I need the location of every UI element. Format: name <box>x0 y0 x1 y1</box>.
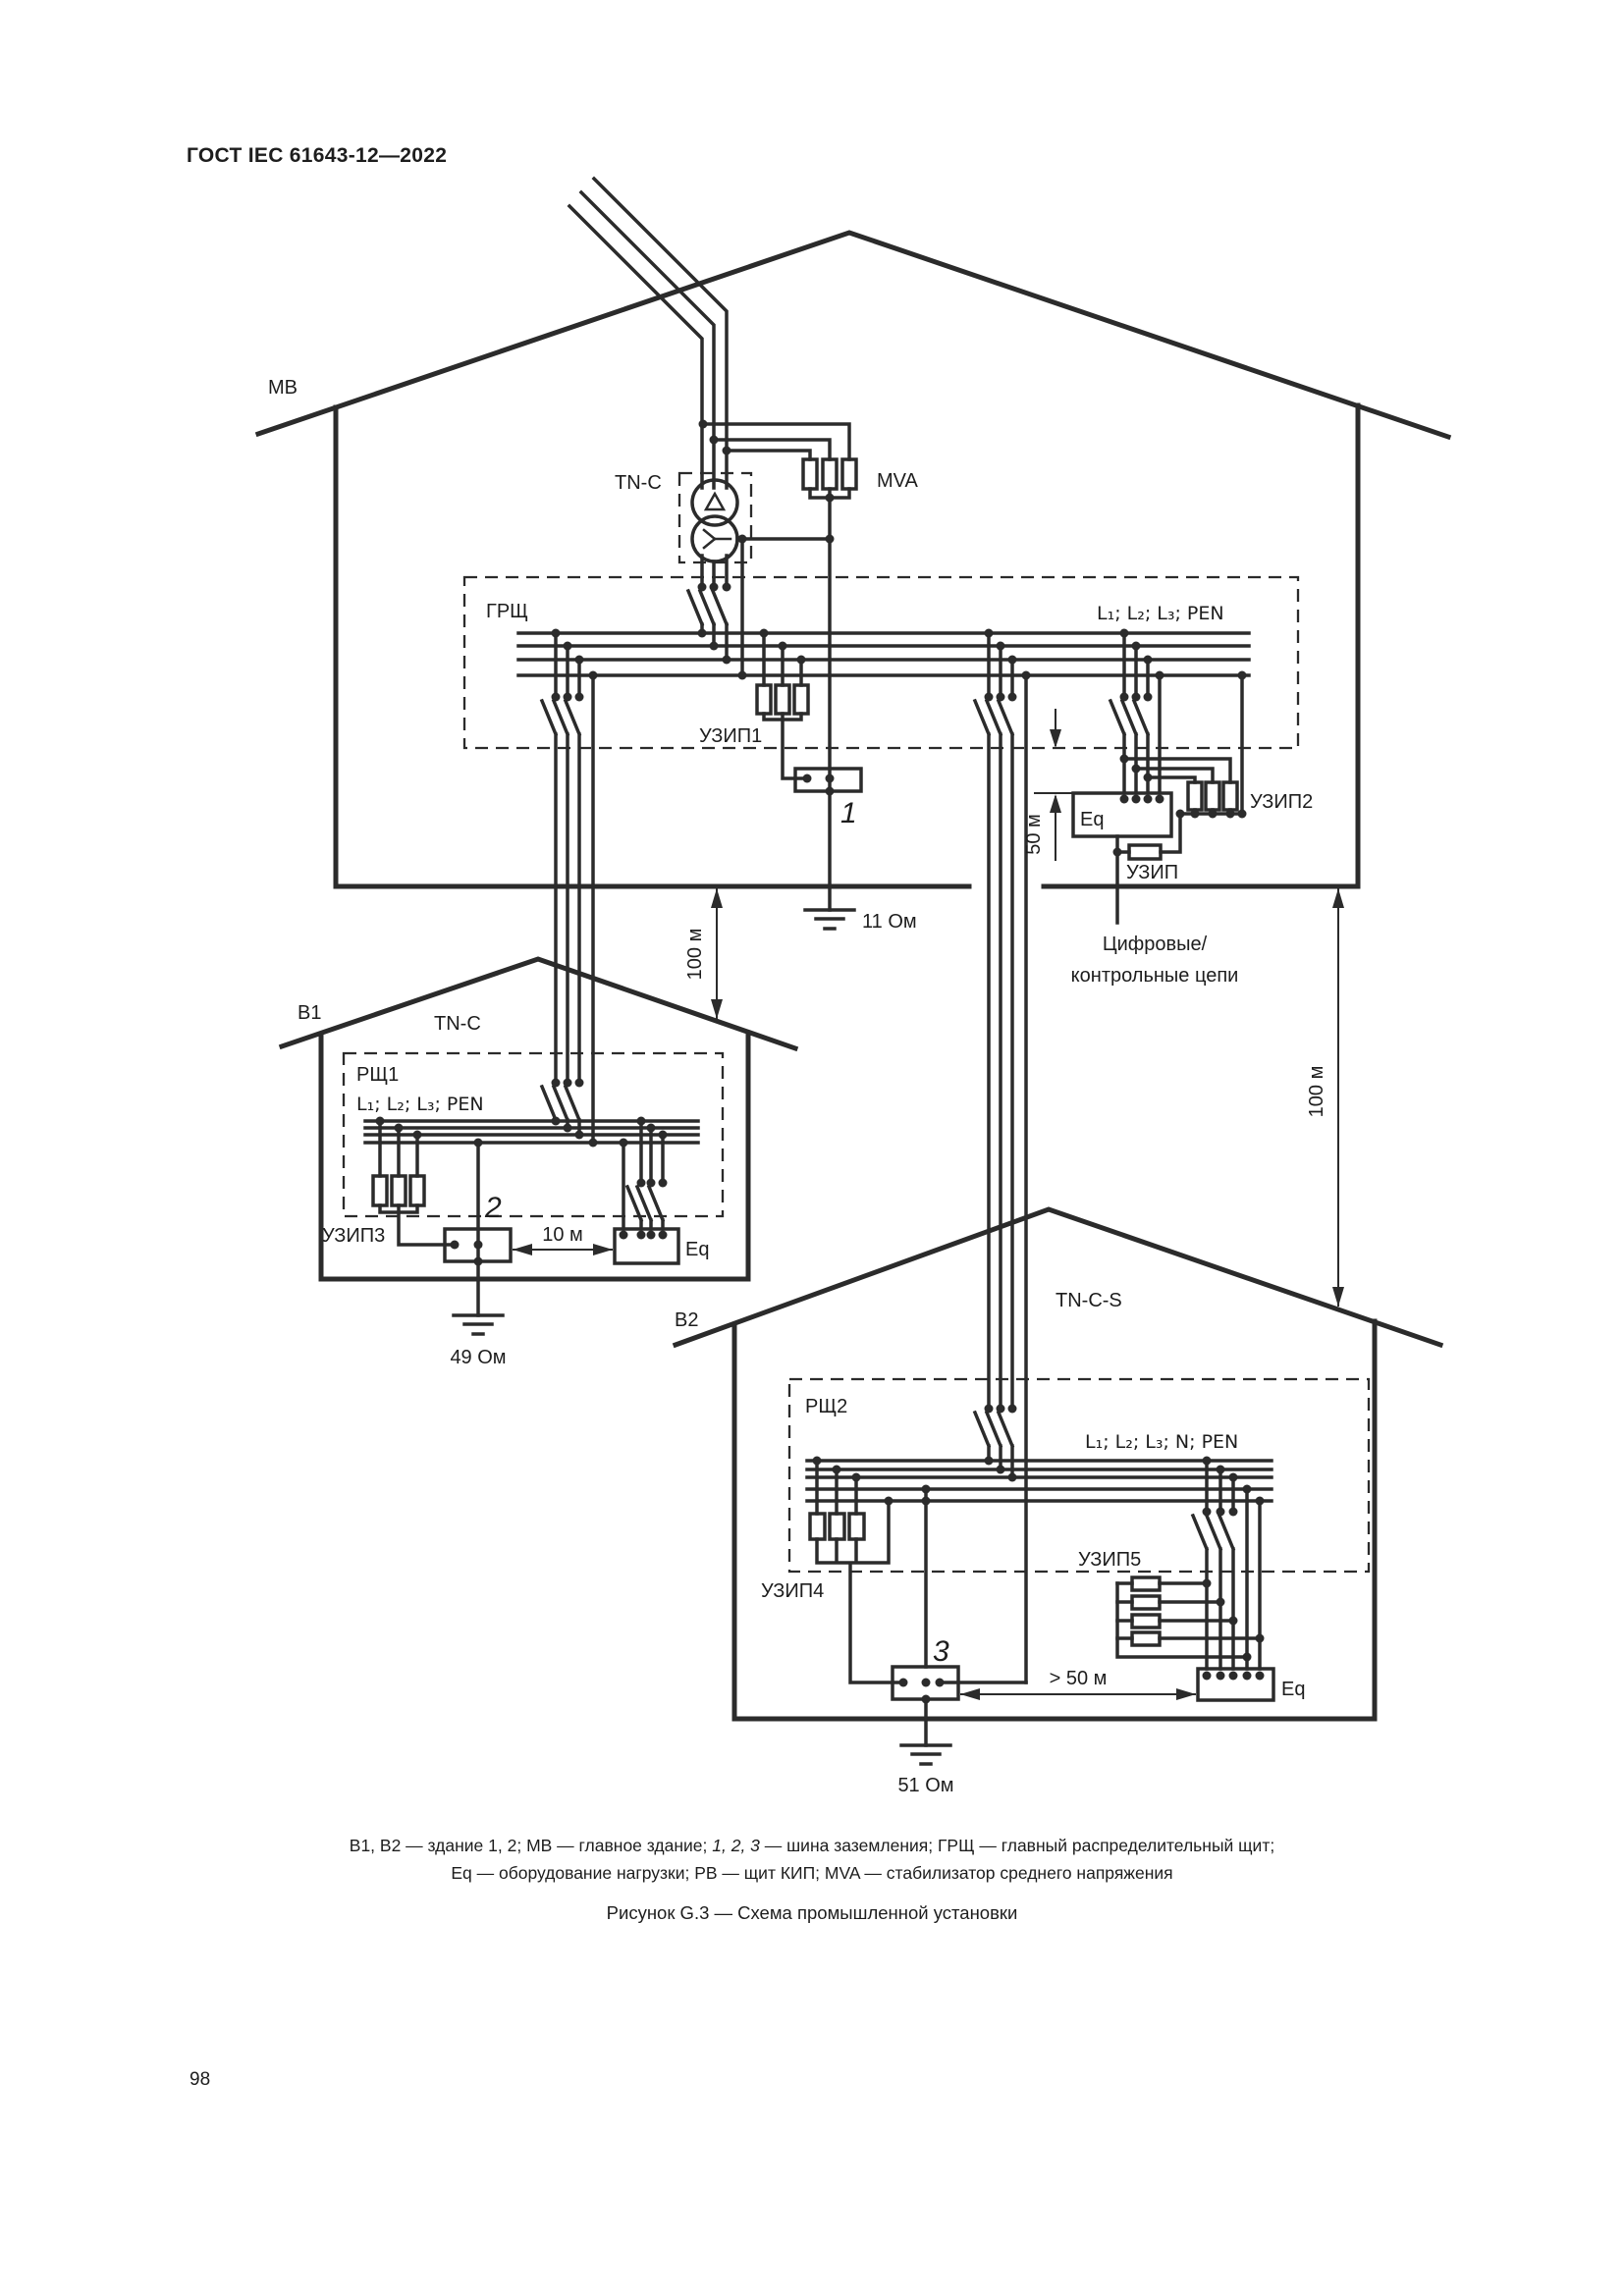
document-page: ГОСТ IEC 61643-12—2022 <box>0 0 1624 2296</box>
label-digital-2: контрольные цепи <box>1071 965 1239 987</box>
dim-100m-left <box>711 888 723 1019</box>
label-tnc-b1: TN-C <box>434 1013 481 1035</box>
label-dim-10m: 10 м <box>542 1224 583 1246</box>
label-uzip: УЗИП <box>1126 862 1178 883</box>
figure-legend-line1: B1, B2 — здание 1, 2; МВ — главное здани… <box>59 1834 1565 1857</box>
uzip1-spd <box>757 633 808 778</box>
building2-outline <box>676 1209 1440 1719</box>
label-uzip4: УЗИП4 <box>761 1580 824 1602</box>
label-rshch2: РЩ2 <box>805 1396 847 1417</box>
main-building-outline <box>258 233 1448 886</box>
legend-line1-italic: 1, 2, 3 <box>712 1836 760 1855</box>
uzip5-spd <box>1117 1577 1260 1657</box>
page-number: 98 <box>189 2069 210 2091</box>
figure-caption: Рисунок G.3 — Схема промышленной установ… <box>59 1902 1565 1924</box>
label-rshch1: РЩ1 <box>356 1064 399 1086</box>
rshch1-board <box>344 1053 723 1229</box>
label-dim-50m: 50 м <box>1023 814 1045 855</box>
label-11-ohm: 11 Ом <box>862 911 917 933</box>
earth-bus-3 <box>893 1667 1026 1745</box>
label-earth-bus-3: 3 <box>933 1635 949 1668</box>
industrial-installation-schematic: МВ TN-C MVA ГРЩ L₁; L₂; L₃; PEN УЗИП1 1 … <box>0 0 1624 2296</box>
label-uzip5: УЗИП5 <box>1078 1549 1141 1571</box>
label-uzip3: УЗИП3 <box>322 1225 385 1247</box>
label-eq-b2: Eq <box>1281 1679 1305 1700</box>
label-51-ohm: 51 Ом <box>897 1775 953 1796</box>
label-digital-1: Цифровые/ <box>1103 934 1208 955</box>
ground-51ohm <box>901 1745 950 1764</box>
label-b2: B2 <box>675 1309 698 1331</box>
label-dim-100m-left: 100 м <box>684 929 706 981</box>
label-main-building: МВ <box>268 377 298 399</box>
figure-legend-line2: Eq — оборудование нагрузки; РВ — щит КИП… <box>59 1861 1565 1885</box>
ground-11ohm <box>805 910 854 929</box>
label-uzip2: УЗИП2 <box>1250 791 1313 813</box>
label-tncs-b2: TN-C-S <box>1056 1290 1122 1311</box>
label-eq-b1: Eq <box>685 1239 709 1260</box>
dim-100m-right <box>1332 888 1344 1307</box>
label-grshch: ГРЩ <box>486 601 528 622</box>
label-rshch2-phases: L₁; L₂; L₃; N; PEN <box>1085 1431 1238 1453</box>
rshch2-board <box>789 1379 1369 1669</box>
dim-50m-plus <box>960 1688 1196 1700</box>
label-b1: B1 <box>298 1002 321 1024</box>
uzip3-spd <box>373 1121 455 1245</box>
legend-line1-pre: B1, B2 — здание 1, 2; МВ — главное здани… <box>350 1836 712 1855</box>
label-dim-100m-right: 100 м <box>1306 1066 1327 1118</box>
hv-supply-lines <box>569 179 727 488</box>
grshch-board <box>464 577 1298 1682</box>
label-eq-main: Eq <box>1080 809 1104 830</box>
label-grshch-phases: L₁; L₂; L₃; PEN <box>1097 603 1224 624</box>
label-earth-bus-2: 2 <box>484 1192 502 1224</box>
label-tnc-main: TN-C <box>615 472 662 494</box>
earth-bus-2 <box>445 1143 511 1315</box>
label-uzip1: УЗИП1 <box>699 725 762 747</box>
label-49-ohm: 49 Ом <box>450 1347 506 1368</box>
label-mva: MVA <box>877 470 919 492</box>
legend-line1-post: — шина заземления; ГРЩ — главный распред… <box>760 1836 1274 1855</box>
label-rshch1-phases: L₁; L₂; L₃; PEN <box>356 1094 484 1115</box>
ground-49ohm <box>454 1315 503 1334</box>
label-dim-50m-plus: > 50 м <box>1050 1668 1108 1689</box>
label-earth-bus-1: 1 <box>840 797 857 829</box>
